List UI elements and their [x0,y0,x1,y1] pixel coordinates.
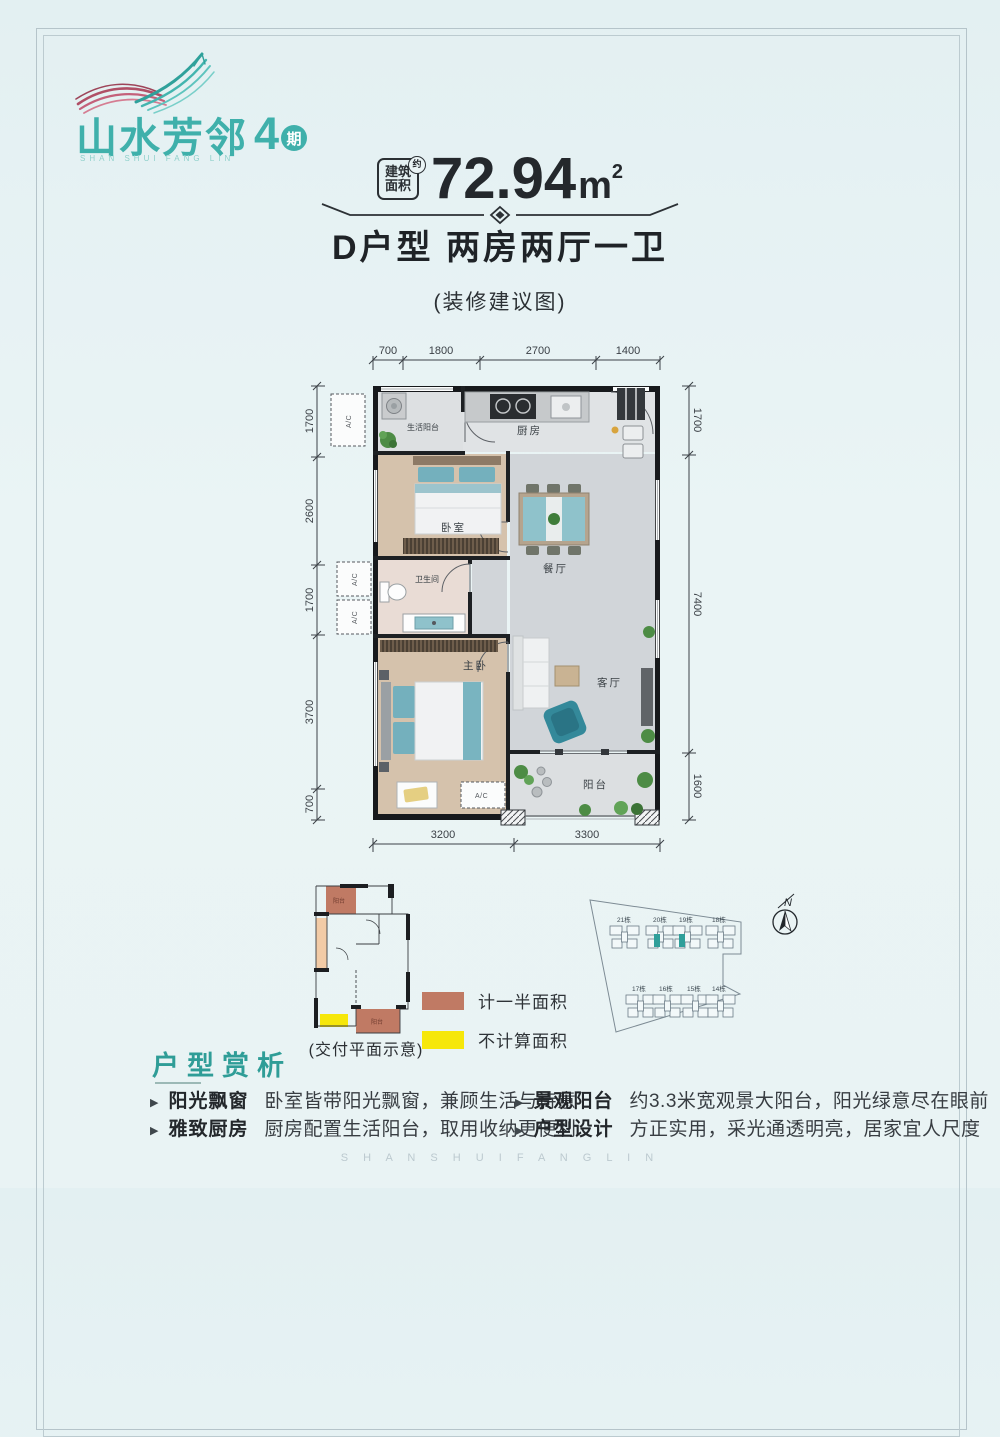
analysis-item-2: ▶ 雅致厨房 厨房配置生活阳台，取用收纳更便利 [150,1114,577,1141]
area-legend: 计一半面积 不计算面积 [422,988,568,1066]
label-dining: 餐厅 [543,562,568,575]
analysis-item-4: ▶ 户型设计 方正实用，采光通透明亮，居家宜人尺度 [515,1114,981,1141]
floor-plan: A/C A/C A/C A/C 生活阳台 厨房 卧室 餐厅 卫生间 主卧 客厅 … [285,330,715,865]
coffee-table [555,666,579,686]
analysis-item-1: ▶ 阳光飘窗 卧室皆带阳光飘窗，兼顾生活与诗意 [150,1086,577,1113]
bldg-label-21: 21栋 [617,915,631,924]
mini-bottom-balcony-label: 阳台 [371,1018,383,1026]
delivery-mini-plan: 阳台 阳台 [296,876,436,1041]
bldg-label-16: 16栋 [659,984,673,993]
legend-swatch-none [422,1031,464,1049]
vanity-icon [403,614,465,632]
unit-subtitle: (装修建议图) [0,286,1000,316]
area-unit-sup: 2 [612,161,623,183]
kitchen-counter [465,392,589,422]
site-map: 21栋 20栋 19栋 18栋 17栋 16栋 15栋 14栋 N [578,882,813,1047]
svg-text:1700: 1700 [304,409,316,433]
watermark: S H A N S H U I F A N G L I N [0,1152,1000,1164]
area-tag-box: 建筑 面积 约 [377,158,419,200]
svg-text:3200: 3200 [431,829,455,841]
mini-half-strip [316,918,327,970]
legend-swatch-half [422,992,464,1010]
building-area-row: 建筑 面积 约 72.94m2 [0,150,1000,208]
ac-label: A/C [352,573,359,586]
legend-row-half-area: 计一半面积 [422,988,568,1013]
compass-icon: N [773,894,797,934]
washer-icon [382,393,406,419]
bldg-label-20: 20栋 [653,915,667,924]
highlight-unit-20 [654,934,660,947]
unit-title: D户型 两房两厅一卫 [0,220,1000,269]
analysis-item-3: ▶ 景观阳台 约3.3米宽观景大阳台，阳光绿意尽在眼前 [515,1086,989,1113]
svg-text:1700: 1700 [304,588,316,612]
plant-icon [641,729,655,743]
ac-label: A/C [352,611,359,624]
svg-text:3700: 3700 [304,700,316,724]
mini-yellow-area [320,1014,348,1027]
bedroom-rug [403,538,499,554]
master-wardrobe [380,640,498,652]
svg-text:1400: 1400 [616,345,640,357]
svg-text:3300: 3300 [575,829,599,841]
bay-bench [397,782,437,808]
svg-text:2600: 2600 [304,499,316,523]
area-value-group: 72.94m2 [431,150,623,208]
mini-top-balcony-label: 阳台 [333,897,345,905]
legend-row-no-area: 不计算面积 [422,1027,568,1052]
bldg-label-19: 19栋 [679,915,693,924]
svg-text:1700: 1700 [691,408,703,432]
living-sofa [513,636,549,710]
svg-text:700: 700 [304,795,316,813]
area-approx-circle: 约 [408,156,426,174]
analysis-title: 户型赏析 [152,1044,292,1083]
bullet-triangle-icon: ▶ [150,1096,158,1109]
svg-text:7400: 7400 [691,592,703,616]
area-unit: m [578,165,612,207]
svg-text:1600: 1600 [691,774,703,798]
stove-icon [490,394,536,419]
area-tag-line1: 建筑 [385,165,411,179]
label-balcony: 阳台 [583,778,608,791]
bullet-triangle-icon: ▶ [515,1096,523,1109]
bldg-label-18: 18栋 [712,915,726,924]
buildings-top-row: 21栋 20栋 19栋 18栋 [610,915,735,948]
ac-label: A/C [475,793,488,800]
bullet-triangle-icon: ▶ [150,1124,158,1137]
svg-text:700: 700 [379,345,397,357]
fridge-icon [617,388,645,420]
brand-phase-badge: 期 [281,125,307,151]
label-bedroom: 卧室 [441,521,466,534]
divider-diamond-icon [496,211,505,219]
bldg-label-14: 14栋 [712,984,726,993]
svg-text:1800: 1800 [429,345,453,357]
ac-label: A/C [346,415,353,428]
tv-console [641,668,653,726]
bldg-label-17: 17栋 [632,984,646,993]
dining-set [519,484,589,555]
label-service-balcony: 生活阳台 [407,422,439,432]
svg-text:2700: 2700 [526,345,550,357]
bldg-label-15: 15栋 [687,984,701,993]
label-master: 主卧 [463,659,488,672]
label-bathroom: 卫生间 [415,574,439,584]
highlight-unit-19 [679,934,685,947]
label-kitchen: 厨房 [517,424,542,437]
toilet-icon [380,582,406,602]
analysis-underline [155,1082,201,1084]
plant-icon [643,626,655,638]
area-tag-line2: 面积 [385,179,411,193]
bullet-triangle-icon: ▶ [515,1124,523,1137]
label-living: 客厅 [597,676,622,689]
